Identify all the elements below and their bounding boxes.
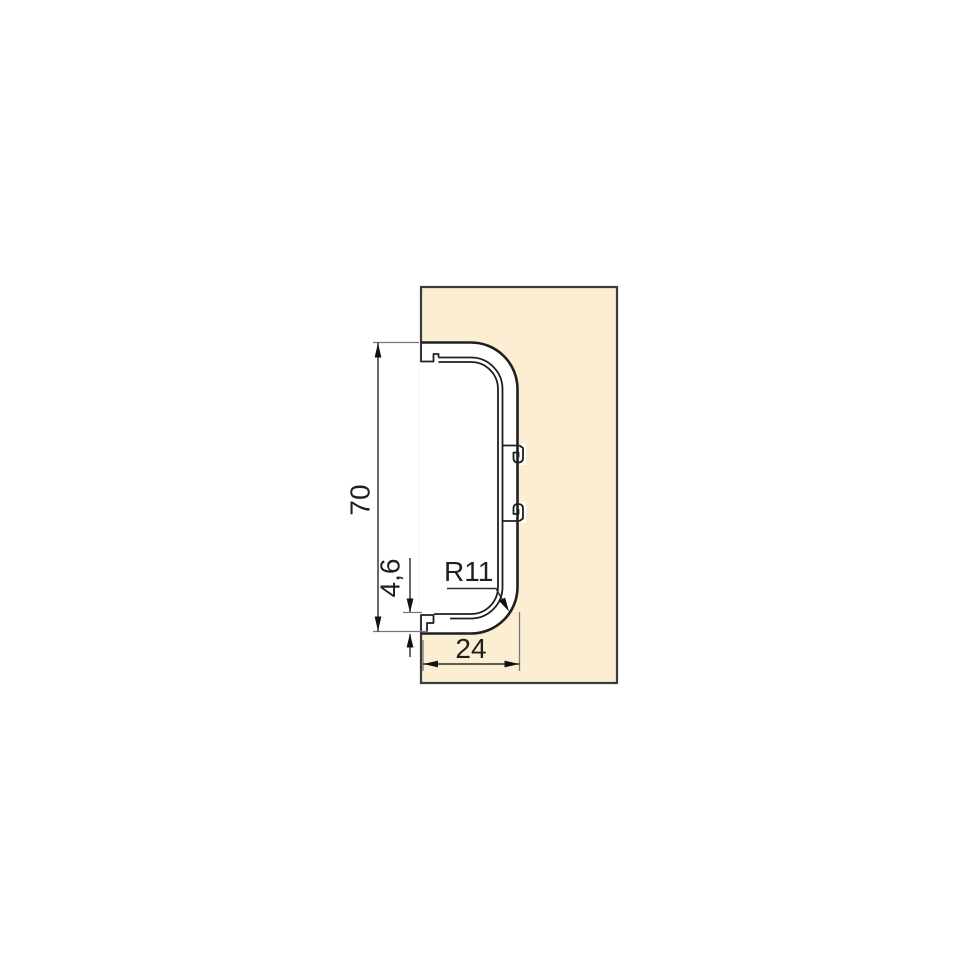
arrowhead-down-small — [407, 599, 414, 613]
technical-drawing: 70 4,6 R11 24 — [0, 0, 970, 971]
dimension-label-70: 70 — [344, 484, 375, 515]
dimension-wall-thickness: 4,6 — [374, 558, 422, 657]
dimension-label-24: 24 — [455, 633, 486, 664]
arrowhead-down — [375, 617, 382, 632]
dimension-label-46: 4,6 — [374, 559, 405, 598]
dimension-label-r11: R11 — [444, 556, 493, 587]
drawing-canvas: 70 4,6 R11 24 — [0, 0, 970, 971]
arrowhead-up-small — [407, 634, 414, 648]
arrowhead-up — [375, 343, 382, 358]
